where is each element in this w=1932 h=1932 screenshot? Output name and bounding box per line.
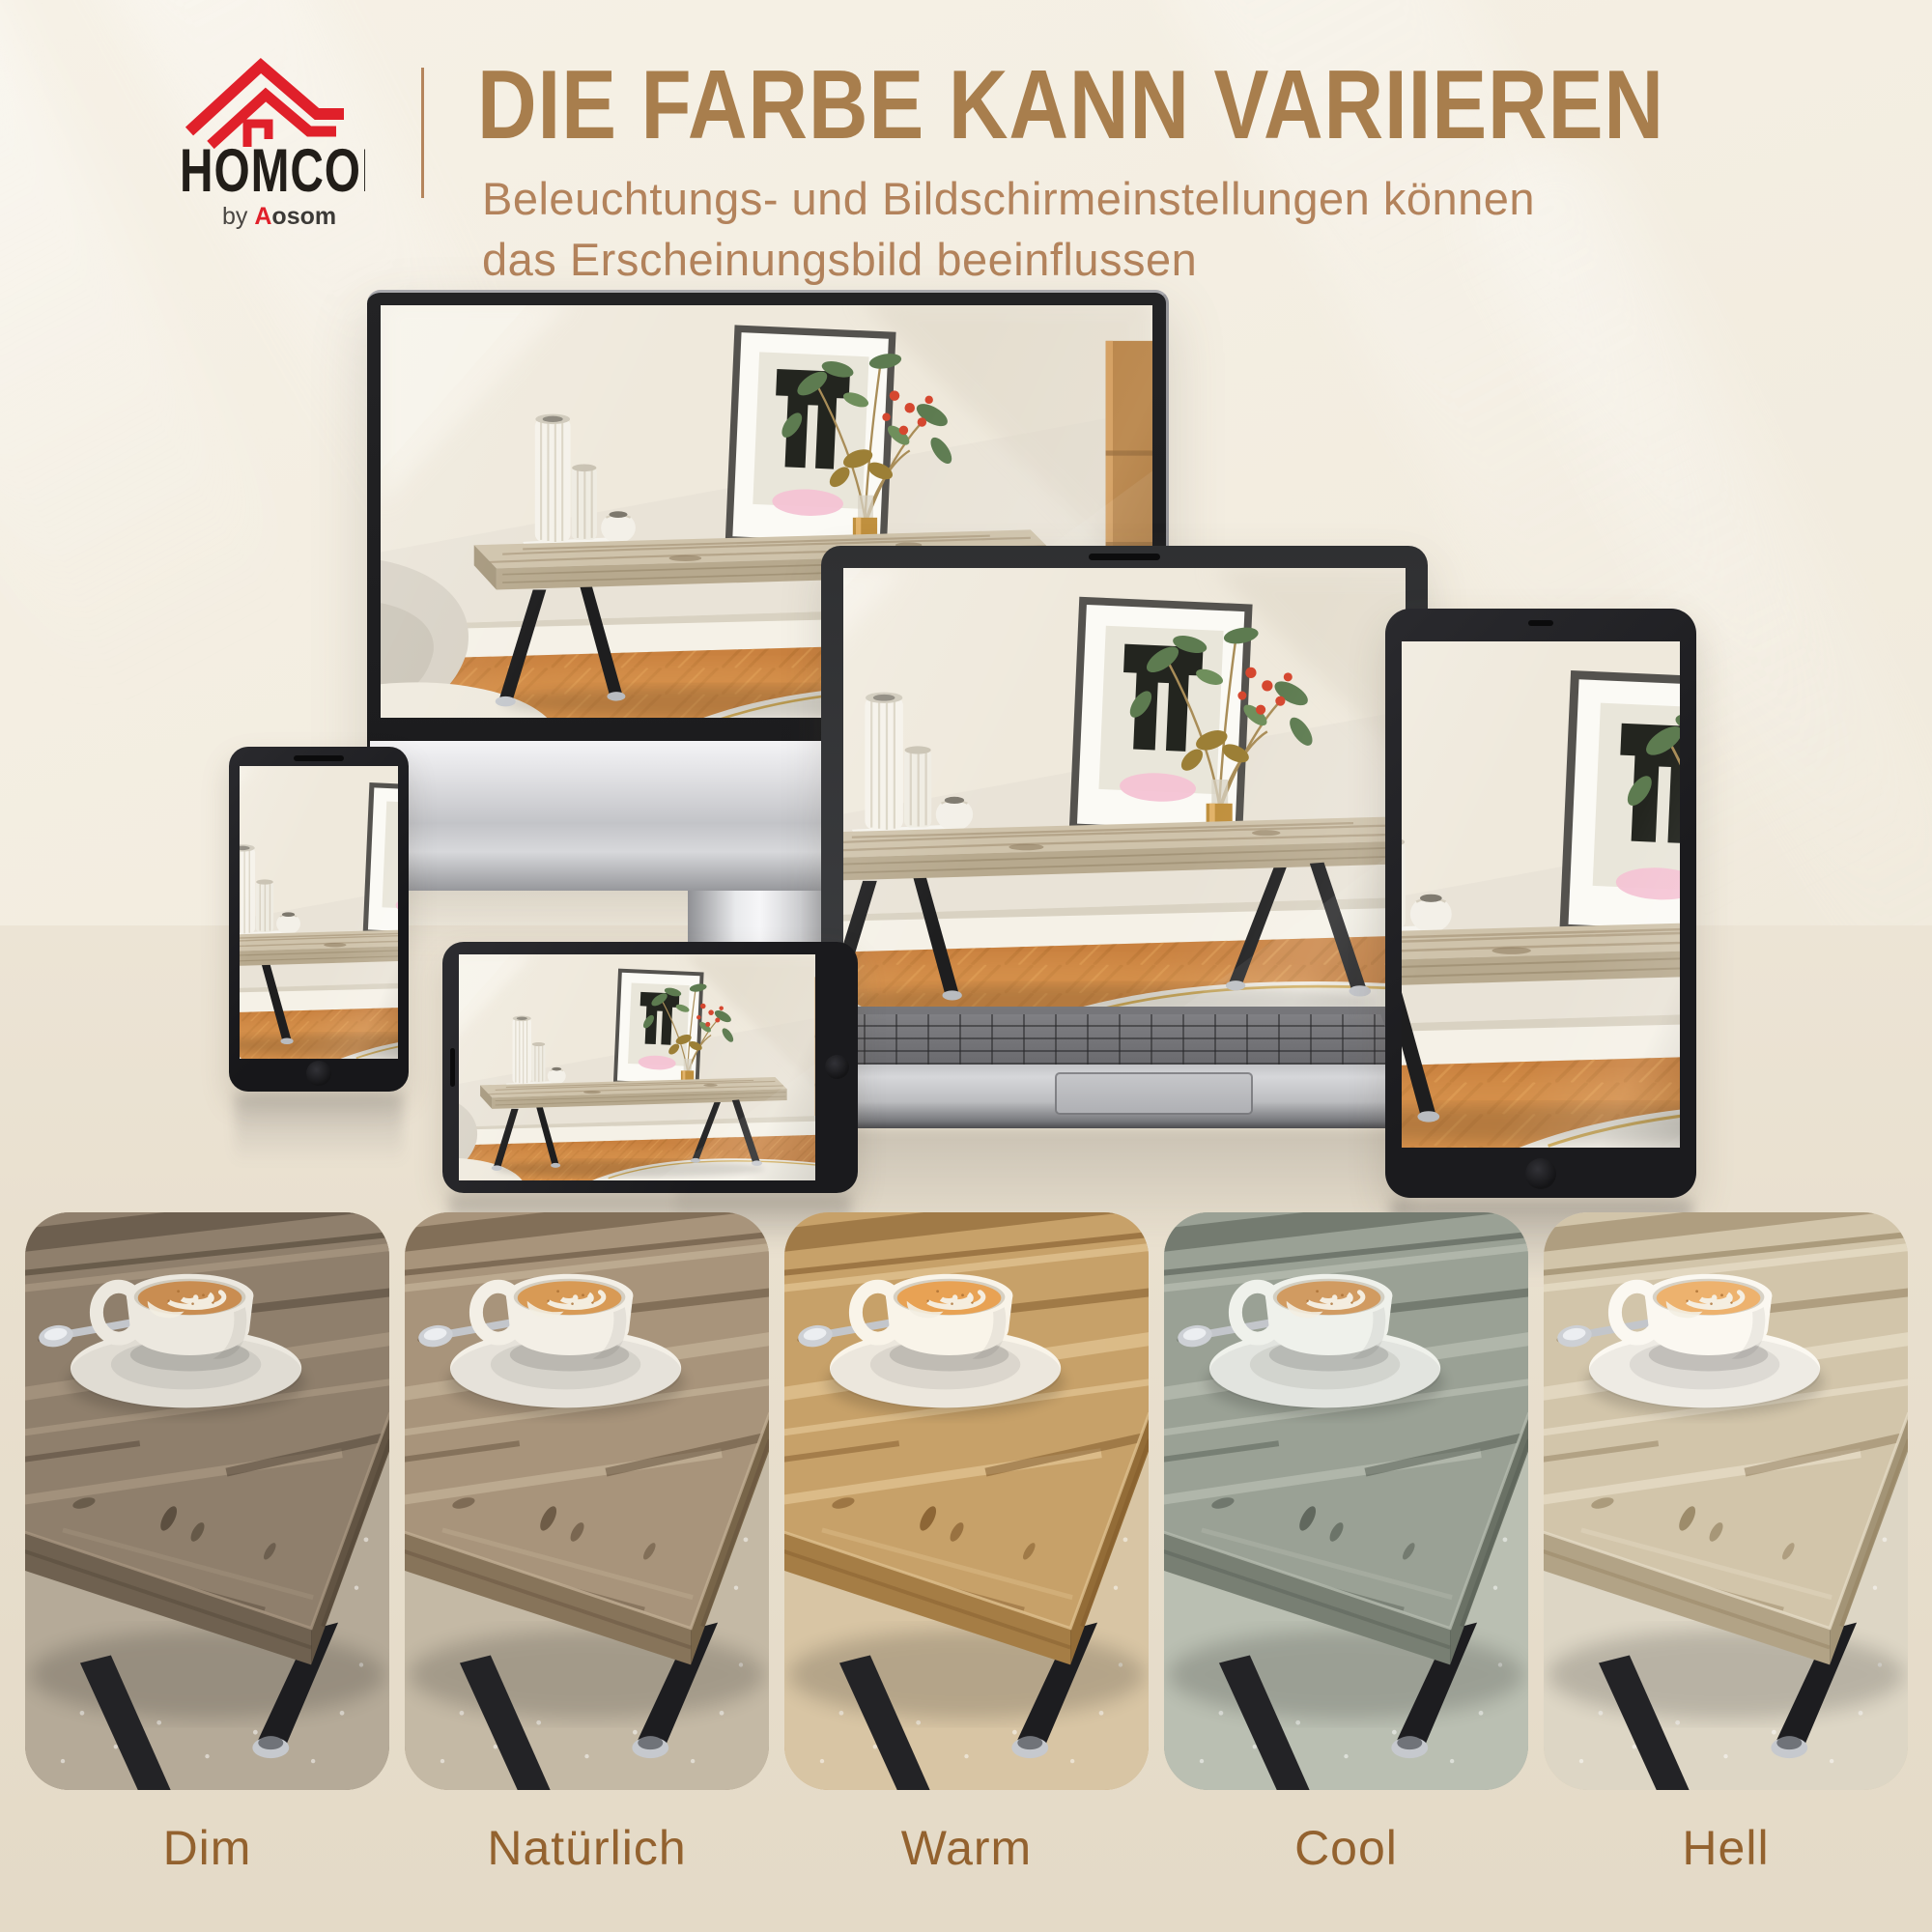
page-title: DIE FARBE KANN VARIIEREN	[477, 62, 1664, 148]
swatch-label: Natürlich	[405, 1820, 769, 1876]
phone-portrait-screen	[240, 766, 398, 1059]
swatch-label-row: Dim Natürlich Warm Cool Hell	[25, 1820, 1908, 1876]
tablet-screen	[1402, 641, 1680, 1148]
swatch-label: Cool	[1164, 1820, 1528, 1876]
header-divider	[421, 68, 424, 198]
swatch-dim	[25, 1212, 389, 1790]
homcom-logo: HOMCOM by Aosom	[172, 39, 365, 232]
subtitle-line-1: Beleuchtungs- und Bildschirmeinstellunge…	[482, 168, 1535, 229]
swatch-hell	[1544, 1212, 1908, 1790]
phone-landscape-screen	[459, 954, 815, 1180]
swatch-label: Warm	[784, 1820, 1149, 1876]
speaker-slot-icon	[294, 755, 344, 761]
product-poster: HOMCOM by Aosom DIE FARBE KANN VARIIEREN…	[0, 0, 1932, 1932]
home-button-icon	[1525, 1158, 1556, 1189]
swatch-label: Dim	[25, 1820, 389, 1876]
phone-portrait-mockup	[229, 747, 409, 1092]
laptop-mockup	[821, 546, 1428, 1026]
webcam-icon	[1089, 554, 1160, 560]
swatch-cool	[1164, 1212, 1528, 1790]
swatch-warm	[784, 1212, 1149, 1790]
home-button-icon	[825, 1055, 849, 1079]
phone-landscape-mockup	[442, 942, 858, 1193]
tablet-mockup	[1385, 609, 1696, 1198]
laptop-screen	[843, 568, 1406, 1026]
speaker-slot-icon	[450, 1048, 455, 1087]
color-swatch-row	[25, 1212, 1908, 1790]
trackpad	[1055, 1072, 1253, 1115]
swatch-natuerlich	[405, 1212, 769, 1790]
subtitle-line-2: das Erscheinungsbild beeinflussen	[482, 229, 1535, 290]
homcom-roof-icon	[189, 66, 344, 147]
camera-icon	[1528, 620, 1553, 626]
phone-portrait-reflection	[235, 1094, 403, 1176]
logo-byline: by Aosom	[222, 203, 336, 230]
home-button-icon	[306, 1061, 331, 1086]
logo-wordmark: HOMCOM	[180, 135, 365, 204]
page-subtitle: Beleuchtungs- und Bildschirmeinstellunge…	[482, 168, 1535, 290]
swatch-label: Hell	[1544, 1820, 1908, 1876]
